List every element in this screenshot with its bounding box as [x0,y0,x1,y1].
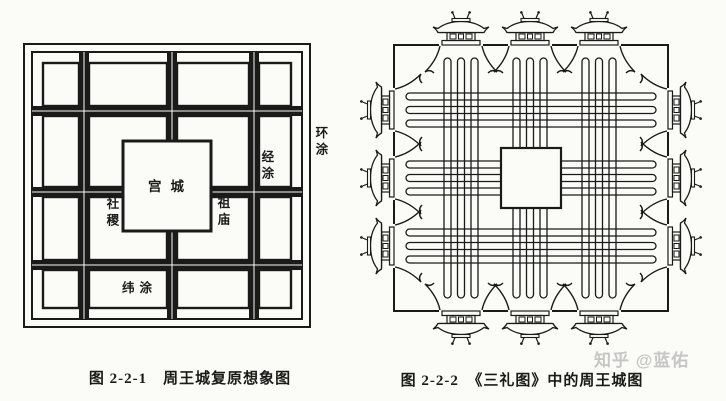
gate-tower-right-2 [640,142,702,214]
gate-tower-top-3 [563,11,635,73]
scanned-book-page: 宫城 社稷 祖庙 经涂 环涂 纬涂 图 2-2-1 周王城复原想象图 图 2-2… [0,0,726,401]
label-huan-tu-road: 环涂 [313,126,327,159]
gate-tower-right-1 [640,74,702,146]
right-figure-caption: 图 2-2-2 《三礼图》中的周王城图 [372,369,672,390]
gate-tower-bottom-3 [563,283,635,345]
label-ancestral-temple: 祖庙 [215,196,229,229]
right-palace-square [501,148,561,208]
zhihu-watermark: 知乎 @蓝佑 [594,346,689,371]
gate-tower-top-1 [425,11,497,73]
gate-tower-right-3 [640,210,702,282]
gate-tower-left-3 [360,210,422,282]
gate-tower-bottom-2 [494,283,566,345]
gate-tower-top-2 [494,11,566,73]
right-plan-drawing [360,11,702,345]
label-jing-tu-road: 经涂 [259,150,273,183]
label-palace-city: 宫城 [148,179,193,195]
label-sheji-altar: 社稷 [104,197,118,230]
gate-tower-bottom-1 [425,283,497,345]
left-figure-caption: 图 2-2-1 周王城复原想象图 [52,367,328,388]
gate-tower-left-1 [360,74,422,146]
label-wei-tu-road: 纬涂 [122,281,157,295]
gate-tower-left-2 [360,142,422,214]
